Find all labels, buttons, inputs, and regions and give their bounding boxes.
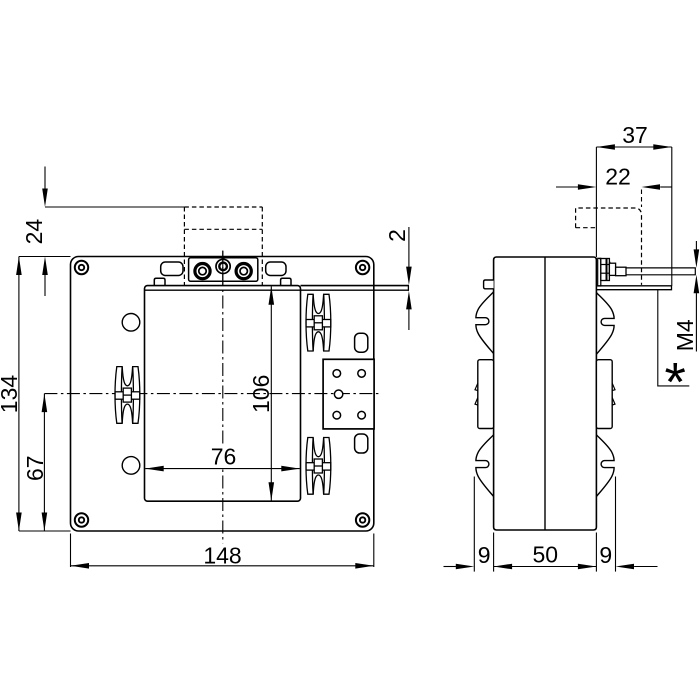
svg-text:106: 106 xyxy=(248,375,274,413)
svg-text:134: 134 xyxy=(0,375,22,414)
svg-text:37: 37 xyxy=(622,122,648,148)
svg-text:*: * xyxy=(664,351,685,413)
svg-text:50: 50 xyxy=(533,542,559,568)
svg-text:9: 9 xyxy=(478,542,491,568)
svg-text:2: 2 xyxy=(384,229,410,242)
svg-text:22: 22 xyxy=(605,164,631,190)
svg-text:M4: M4 xyxy=(672,319,698,351)
svg-text:67: 67 xyxy=(22,455,48,481)
svg-text:148: 148 xyxy=(203,542,241,568)
svg-text:24: 24 xyxy=(21,219,47,245)
svg-text:9: 9 xyxy=(599,542,612,568)
svg-text:76: 76 xyxy=(211,443,237,469)
